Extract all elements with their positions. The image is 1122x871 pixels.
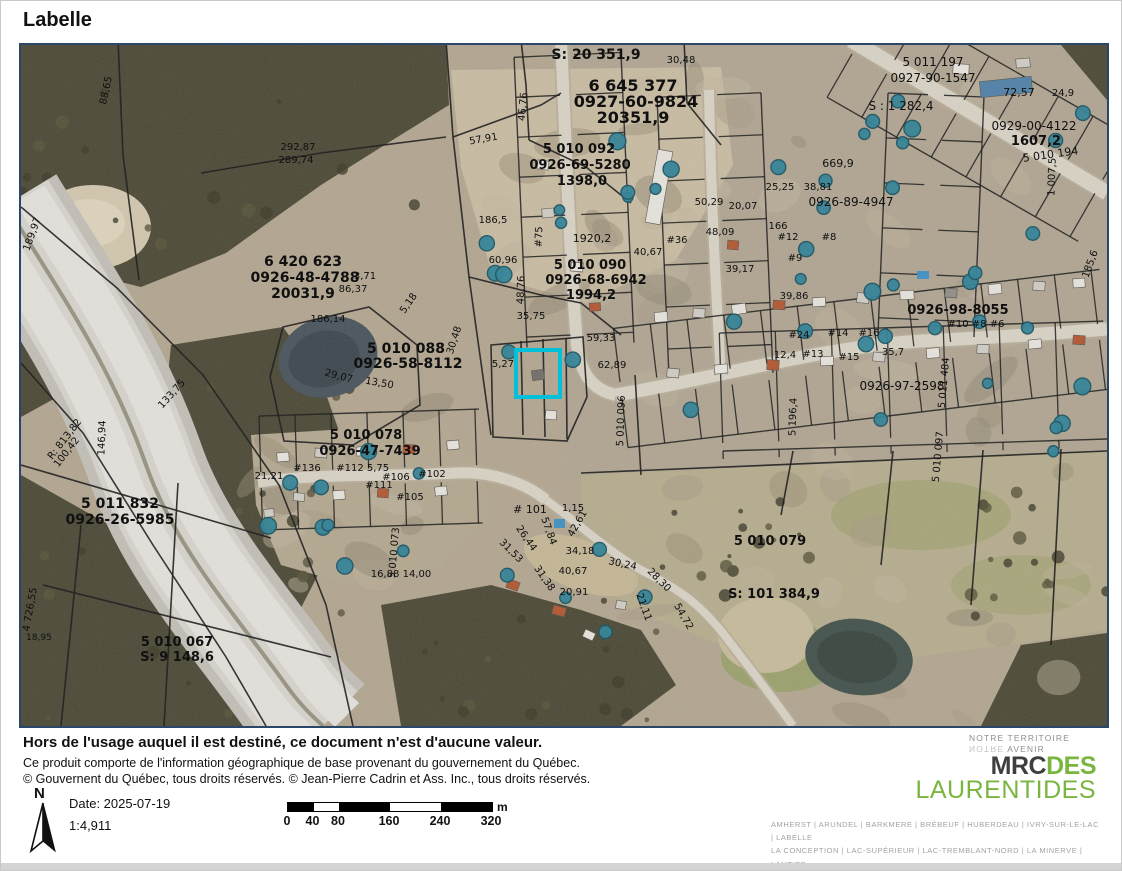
parcel-label: 0926-89-4947 [808,195,893,209]
parcel-label: 5 010 067 [141,635,213,650]
parcel-label: 186,5 [479,215,508,226]
parcel-label: 5 010 097 [931,431,946,483]
parcel-label: 133,75 [156,378,188,411]
page-title: Labelle [23,9,92,32]
parcel-label: 5 011 832 [81,496,159,512]
parcel-label: 72,57 [1003,86,1035,99]
parcel-label: 0926-47-7439 [319,444,420,459]
parcel-label: 38,81 [804,182,833,193]
parcel-label: 59,33 [587,333,616,344]
parcel-label: 189,97 [21,216,43,253]
scale-tick: 320 [481,814,502,828]
parcel-label: 1994,2 [566,288,616,303]
parcel-label: 16,88 14,00 [371,569,431,580]
parcel-label: 5 010 078 [330,428,402,443]
credit-line-2: © Gouvernent du Québec, tous droits rése… [23,772,590,786]
parcel-label: 20,91 [560,587,589,598]
scale-tick: 80 [331,814,345,828]
parcel-label: 21,21 [255,471,284,482]
parcel-label: 20,07 [729,201,758,212]
parcel-label: 46,76 [517,92,530,121]
parcel-label: 30,48 [667,55,696,66]
parcel-label: 5 010 092 [543,142,615,157]
parcel-label: #102 [418,469,445,480]
parcel-label: 54,72 [671,602,695,632]
parcel-label: 30,24 [607,556,637,573]
scale-tick: 240 [430,814,451,828]
parcel-label: 5 011 484 [937,357,952,409]
parcel-label: #8 [822,232,837,243]
parcel-label: 20351,9 [597,108,670,127]
scale-tick: 40 [306,814,320,828]
parcel-label: 669,9 [822,157,854,170]
parcel-label: 57,91 [469,132,499,148]
parcel-label: 31,38 [531,564,556,594]
parcel-label: 5,27 [492,359,514,370]
parcel-label: 186,14 [311,314,346,325]
parcel-label: 30,48 [445,325,464,356]
parcel-label: 3,71 [354,271,376,282]
north-arrow-icon [28,801,58,853]
parcel-label: 39,86 [780,291,809,302]
parcel-label: 0926-26-5985 [65,512,174,528]
parcel-label: 40,67 [559,566,588,577]
map-document-page: Labelle S: 20 351,96 645 3770927-60-9824… [0,0,1122,871]
parcel-label: 5 010 088 [367,341,445,357]
parcel-label: #112 [336,463,363,474]
parcel-label: 5 196,4 [787,398,799,437]
parcel-label: 25,25 [766,182,795,193]
scale-bar-unit: m [497,800,508,814]
parcel-label: #75 [534,226,546,247]
parcel-label: 4 726,55 [21,587,40,633]
parcel-label: 0926-97-2598 [859,379,944,393]
parcel-label: 0926-68-6942 [545,273,646,288]
parcel-label: #36 [666,235,687,246]
parcel-label: 48,09 [706,227,735,238]
parcel-label: 5,18 [398,291,420,316]
parcel-label: 18,95 [26,633,52,643]
parcel-label: 48,76 [516,275,528,304]
parcel-label: #12 [777,232,798,243]
municipality-line: AMHERST | ARUNDEL | BARKMERE | BRÉBEUF |… [771,818,1101,844]
scale-tick: 160 [379,814,400,828]
parcel-label: 34,18 [566,546,595,557]
parcel-label: #111 [365,480,392,491]
parcel-label: 21,11 [633,592,653,623]
parcel-label: 31,53 [497,537,525,565]
parcel-label: #136 [293,463,320,474]
parcel-label: 289,74 [279,155,314,166]
parcel-label: S: 101 384,9 [728,587,820,602]
parcel-label: 292,87 [281,142,316,153]
parcel-label: #16 [858,328,879,339]
parcel-label: #105 [396,492,423,503]
parcel-label: 6 420 623 [264,254,342,270]
parcel-label: 13,50 [364,376,394,392]
parcel-label: 166 [768,221,787,232]
map-scale-ratio: 1:4,911 [69,818,111,833]
parcel-label: 40,67 [634,247,663,258]
parcel-label: 0926-58-8112 [353,356,462,372]
parcel-label: 62,89 [598,360,627,371]
parcel-label: 5 011 197 [902,55,963,69]
parcel-label: #9 [788,253,803,264]
parcel-label: 57,84 [538,516,558,547]
map-date: Date: 2025-07-19 [69,796,170,811]
parcel-label: 0929-00-4122 [991,119,1076,133]
parcel-label: 1 007,5 [1046,158,1058,197]
selected-parcel-highlight [514,348,562,399]
parcel-label: 60,96 [489,255,518,266]
parcel-label: # 101 [513,503,547,516]
logo-tagline-territoire: NOTRE TERRITOIRE [969,733,1070,743]
parcel-label: #13 [802,349,823,360]
parcel-label: 35,7 [882,347,904,358]
parcel-label: 50,29 [695,197,724,208]
parcel-label: #15 [838,352,859,363]
credit-line-1: Ce produit comporte de l'information géo… [23,756,580,770]
parcel-label: 0927-90-1547 [890,71,975,85]
parcel-label: 12,4 [774,350,796,361]
parcel-label: 0926-69-5280 [529,158,630,173]
scale-bar [287,802,493,812]
north-label: N [34,785,45,802]
parcel-label: 24,9 [1052,88,1074,99]
parcel-label: 5 010 096 [615,395,628,446]
parcel-label: 39,17 [726,264,755,275]
parcel-label: 5 010 079 [734,534,806,549]
parcel-label: S: 20 351,9 [551,47,640,63]
parcel-label: 28,30 [645,566,673,594]
parcel-label: #10 #8 #6 [948,319,1005,330]
parcel-label: 1920,2 [573,232,612,245]
parcel-label: S: 9 148,6 [140,650,214,665]
parcel-label: 185,6 [1081,249,1101,280]
parcel-label: #14 [827,328,848,339]
parcel-label: S : 1 282,4 [868,99,933,113]
parcel-label: 146,94 [96,420,108,455]
window-bottom-strip [1,863,1122,871]
cadastral-labels-layer: S: 20 351,96 645 3770927-60-982420351,93… [21,45,1107,726]
parcel-label: 5 010 090 [554,258,626,273]
parcel-label: 29,07 [323,368,354,386]
map-viewport: S: 20 351,96 645 3770927-60-982420351,93… [19,43,1109,728]
parcel-label: 0926-98-8055 [907,303,1008,318]
scale-tick: 0 [284,814,291,828]
parcel-label: #24 [788,330,809,341]
parcel-label: 86,37 [339,284,368,295]
parcel-label: 20031,9 [271,286,335,302]
logo-brand-line-2: LAURENTIDES [915,776,1096,805]
parcel-label: 88,65 [98,75,115,105]
parcel-label: 35,75 [517,311,546,322]
disclaimer-text: Hors de l'usage auquel il est destiné, c… [23,734,542,751]
parcel-label: 1398,0 [557,174,607,189]
